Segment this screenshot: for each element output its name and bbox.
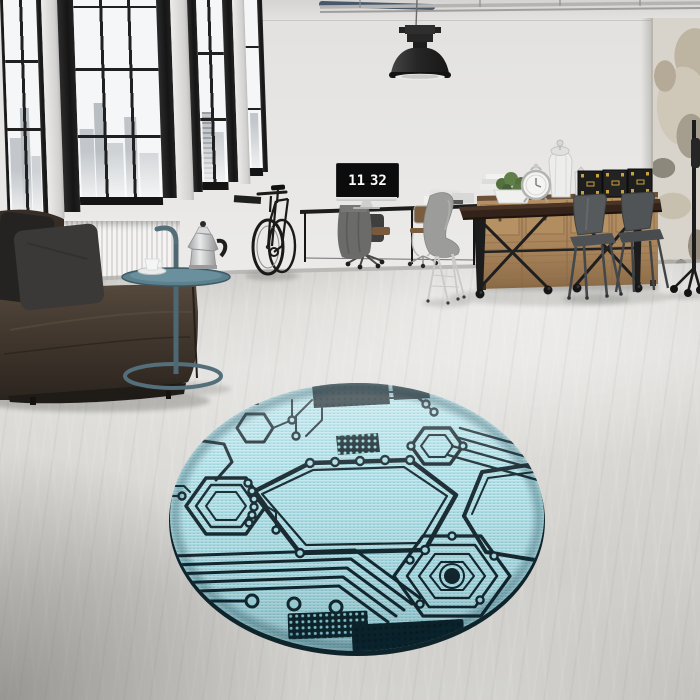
monitor-screen: 11 32 <box>336 163 399 198</box>
monitor-clock: 11 32 <box>336 163 397 211</box>
office-chair <box>346 214 390 269</box>
ceiling <box>250 0 700 21</box>
window-muntins <box>73 0 163 197</box>
wall-corner <box>641 18 651 294</box>
clock-minutes: 32 <box>370 174 387 188</box>
paper-stacks <box>480 174 511 190</box>
potted-plant <box>494 172 532 203</box>
clock-hours: 11 <box>348 174 365 188</box>
factory-windows <box>0 0 278 240</box>
distressed-concrete-column <box>651 18 700 296</box>
office-chair <box>408 206 438 268</box>
decorative-lantern <box>549 140 572 197</box>
window-bay <box>73 0 163 205</box>
monitor-foot <box>353 207 380 209</box>
ornate-table-clock <box>522 164 550 202</box>
draped-jacket <box>338 205 372 259</box>
loft-room-photo: 11 32 <box>0 0 700 700</box>
flip-clock: 11 32 <box>348 174 387 188</box>
rug-shadow <box>150 430 564 690</box>
monitor-chin <box>336 197 397 201</box>
decorative-lantern <box>575 167 587 197</box>
paper-stacks <box>424 189 474 204</box>
